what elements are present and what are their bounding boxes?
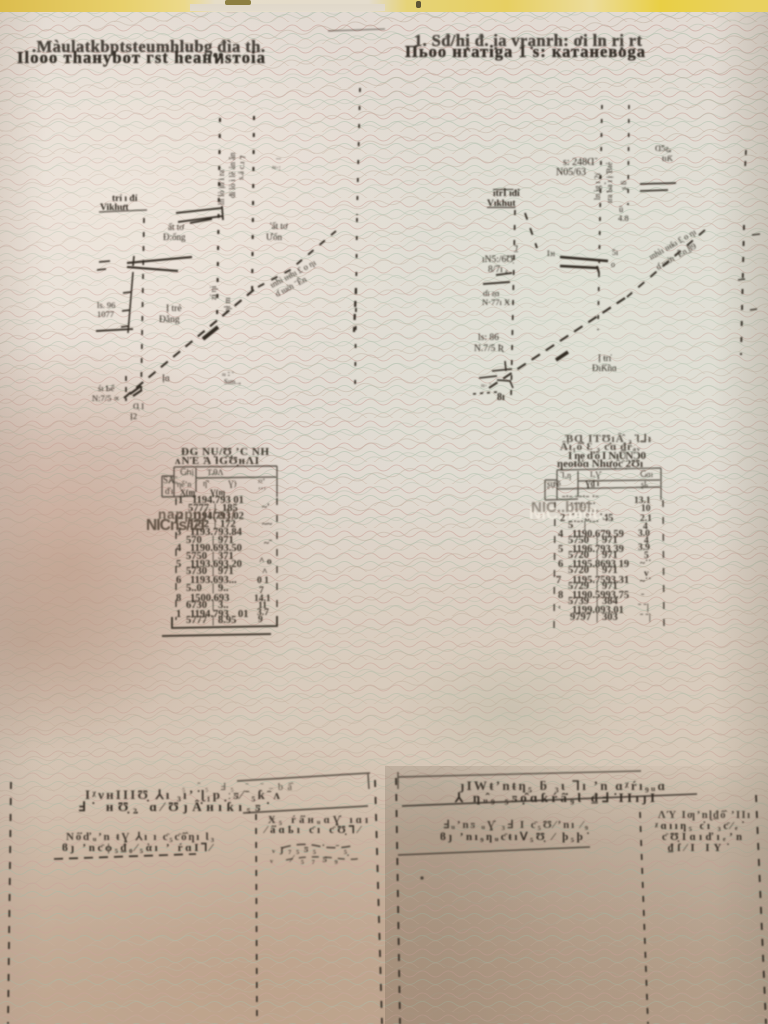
svg-text:Ν.7/5 Ʀ: Ν.7/5 Ʀ <box>474 344 505 354</box>
svg-text:Đ:ống: Đ:ống <box>163 232 186 242</box>
svg-text:~˙˙: ~˙˙ <box>640 558 651 569</box>
svg-text:10: 10 <box>641 504 651 514</box>
svg-text:~ˉ: ~ˉ <box>264 539 273 549</box>
svg-text:^ o: ^ o <box>259 557 272 567</box>
svg-text:9: 9 <box>258 615 263 625</box>
svg-text:~~: ~~ <box>262 520 272 530</box>
svg-text:7: 7 <box>556 575 561 586</box>
svg-text:': ' <box>558 605 561 616</box>
svg-text:5ı: 5ı <box>612 248 619 257</box>
svg-text:ıra Ƅa ̉ı ị Ɓıẻ: ıra Ƅa ̉ı ị Ɓıẻ <box>604 162 614 203</box>
svg-text:4: 4 <box>176 543 182 554</box>
svg-text:ʼʼʼ: ʼʼʼ <box>258 486 266 495</box>
svg-text:~˙˙: ~˙˙ <box>640 576 651 587</box>
svg-text:4.8: 4.8 <box>618 213 629 223</box>
svg-text:6: 6 <box>176 575 181 586</box>
svg-text:'ất tơ: 'ất tơ <box>270 221 288 231</box>
svg-text:ˉ ˉ|: ˉ ˉ| <box>640 613 651 623</box>
svg-text:Ν05/63: Ν05/63 <box>556 167 586 178</box>
svg-text:ЅȺ̃ᵤ: ЅȺ̃ᵤ <box>163 475 178 485</box>
svg-text:0 1: 0 1 <box>257 576 269 586</box>
svg-text:8: 8 <box>176 593 181 604</box>
svg-text:8: 8 <box>558 590 563 601</box>
svg-text:ất tơ: ất tơ <box>168 222 184 232</box>
svg-text:NIC..bI0l..: NIC..bI0l.. <box>531 499 599 516</box>
svg-text:⅂ᵤƞ: ⅂ᵤƞ <box>560 471 571 480</box>
svg-text:~': ~' <box>262 503 270 513</box>
svg-text:ʌΝΈ Ά ƚƓƱ̣ʜɅΙ: ʌΝΈ Ά ƚƓƱ̣ʜɅΙ <box>175 455 259 467</box>
svg-text:ᵡᵡʼ: ᵡᵡʼ <box>258 477 265 486</box>
svg-text:ıΝ5:/6Ʊ̣: ıΝ5:/6Ʊ̣ <box>482 255 514 265</box>
svg-text:⁄ȃ̇ɑҍı ƈı ƈƱ̣⅂⁄: ⁄ȃ̇ɑҍı ƈı ƈƱ̣⅂⁄ <box>263 824 362 836</box>
svg-text:Ɑ̣ I: Ɑ̣ I <box>133 401 144 411</box>
svg-text:ƉıƘ̃nɑ: ƉıƘ̃nɑ <box>592 363 617 373</box>
svg-text:ΙᵤƔ̇: ΙᵤƔ̇ <box>590 470 602 479</box>
svg-text:N:7/5 ∝: N:7/5 ∝ <box>92 393 120 403</box>
svg-text:5: 5 <box>176 559 181 570</box>
svg-text:Ɑ̃5ƨ̲ₐ: Ɑ̃5ƨ̲ₐ <box>655 143 672 153</box>
svg-text:ᵡɑııƞ₅ ϲ̇ı ₃ƈ⁄ₑ ̇: ᵡɑııƞ₅ ϲ̇ı ₃ƈ⁄ₑ ̇ <box>655 821 744 832</box>
svg-text:ϐȷ ʼnı₉ƞᵤƈŧıⅤ₅Ʊ̣ ⁄ ϸ₅ϸ ̇: ϐȷ ʼnı₉ƞᵤƈŧıⅤ₅Ʊ̣ ⁄ ϸ₅ϸ ̇ <box>440 831 589 843</box>
svg-text:ˉ: ˉ <box>641 593 645 603</box>
svg-text:Ị trẻ: Ị trẻ <box>166 304 182 314</box>
svg-text:Ⅎᵤʼnƽ ᵤƔ̇ ₃Ⅎ Ι ƈ₅Ʊ⁄ʼnı ⁄₉: Ⅎᵤʼnƽ ᵤƔ̇ ₃Ⅎ Ι ƈ₅Ʊ⁄ʼnı ⁄₉ <box>443 819 589 831</box>
svg-text:9797: 9797 <box>570 612 591 623</box>
svg-text:01: 01 <box>238 609 249 620</box>
svg-text:8.95: 8.95 <box>218 615 236 626</box>
svg-text:ˉ ˉ|: ˉ ˉ| <box>638 603 649 613</box>
svg-text:ŧıƘ: ŧıƘ <box>662 153 674 163</box>
svg-text:6: 6 <box>558 559 563 570</box>
svg-text:5777: 5777 <box>186 615 207 626</box>
svg-text:ʂự⁄ě: ʂự⁄ě <box>547 479 561 489</box>
svg-text:303: 303 <box>602 612 618 623</box>
svg-text:1077: 1077 <box>97 309 114 319</box>
svg-text:Ɣ): Ɣ) <box>228 479 237 488</box>
svg-text:|: | <box>212 615 214 626</box>
svg-text:ʂҍ: ʂҍ <box>641 480 648 489</box>
svg-text:Ịɑ: Ịɑ <box>162 373 170 383</box>
svg-text:1: 1 <box>176 609 181 620</box>
svg-text:s.ả c.ı ⁊: s.ả c.ı ⁊ <box>236 155 247 180</box>
svg-text:ls: 86: ls: 86 <box>478 333 499 343</box>
svg-text:Ⅎ ̇ ʜƱ̣₂̣ ɑ⁄ƱȷȂ̇ʜıƙı₅ƽ ̇: Ⅎ ̇ ʜƱ̣₂̣ ɑ⁄ƱȷȂ̇ʜıƙı₅ƽ ̇ <box>78 799 269 814</box>
svg-text:8ı: 8ı <box>497 392 505 403</box>
svg-text:Ilооо тhануbот гst hеанหsтoia: Ilооо тhануbот гst hеанหsтoia <box>17 48 265 67</box>
svg-text:o: o <box>611 260 615 269</box>
svg-text:Ⴚɑı: Ⴚɑı <box>640 470 654 479</box>
svg-text:₫ſ⁄Ι ΙΥ ̇: ₫ſ⁄Ι ΙΥ ̇ <box>668 843 729 854</box>
svg-text:Ưốn: Ưốn <box>266 232 282 242</box>
svg-text:Ị2: Ị2 <box>130 411 137 421</box>
svg-text:ΤᎯɅ: ΤᎯɅ <box>207 468 224 477</box>
svg-text:Ɣ₫ ı: Ɣ₫ ı <box>585 479 600 488</box>
svg-text:Vıkhut: Vıkhut <box>487 199 516 209</box>
svg-text:Ị ŧrı̇: Ị ŧrı̇ <box>598 353 612 363</box>
svg-text:ƈƱ̣Ιɑıďıₑʼn: ƈƱ̣Ιɑıďıₑʼn <box>662 832 742 843</box>
svg-text:ıtrİ ıđỉ: ıtrİ ıđỉ <box>493 187 520 199</box>
svg-text:ɅΎ Ιƣʼnɭ₫ȏ̂ ʼΙΙı: ɅΎ Ιƣʼnɭ₫ȏ̂ ʼΙΙı <box>658 810 750 821</box>
svg-text:śı Ƅể: śı Ƅể <box>98 383 115 393</box>
svg-text:5: 5 <box>558 544 563 555</box>
svg-text:ϐȷ ʼnƈϕ₅₫₀⁄₅ὰı ʼ ŕɑΙ⅂⁄: ϐȷ ʼnƈϕ₅₫₀⁄₅ὰı ʼ ŕɑΙ⅂⁄ <box>62 842 214 854</box>
svg-text:NICns/l2l: NICns/l2l <box>146 517 205 534</box>
svg-text:ʂ ƃ: ʂ ƃ <box>619 181 628 190</box>
svg-text:₅ ˆ₅ Ⅎ₅ ˉ ˉ₋ƅȃ̂: ₅ ˆ₅ Ⅎ₅ ˉ ˉ₋ƅȃ̂ <box>182 782 294 793</box>
svg-text:Đẳng: Đẳng <box>159 314 180 325</box>
svg-text:zí ηì: zí ηì <box>209 285 218 300</box>
svg-text:ᵥ ⁄₅₇ƽ₉ ̇: ᵥ ⁄₅₇ƽ₉ ̇ <box>270 854 349 865</box>
svg-text:ƞ̂ʼ: ƞ̂ʼ <box>203 479 210 488</box>
svg-text:ηł m: ηł m <box>223 297 232 312</box>
svg-text:ďı: ďı <box>165 486 174 496</box>
svg-text:Ι϶ı: Ι϶ı <box>547 249 556 258</box>
svg-text:4: 4 <box>558 529 564 540</box>
svg-text:Sım..ₐ: Sım..ₐ <box>224 378 241 386</box>
svg-text:Ⴚհị: Ⴚհị <box>180 468 195 477</box>
svg-text:Пьоо нгатigа 1 s: катаневogа: Пьоо нгатigа 1 s: катаневogа <box>405 42 645 61</box>
svg-text:ˉˉ: ˉˉ <box>276 156 281 165</box>
svg-text:|: | <box>596 612 598 623</box>
svg-text:1: 1 <box>178 495 183 506</box>
svg-text:Ν·77ı Ӿ: Ν·77ı Ӿ <box>482 297 510 307</box>
svg-text:≈· ˉ·: ≈· ˉ· <box>481 382 494 390</box>
